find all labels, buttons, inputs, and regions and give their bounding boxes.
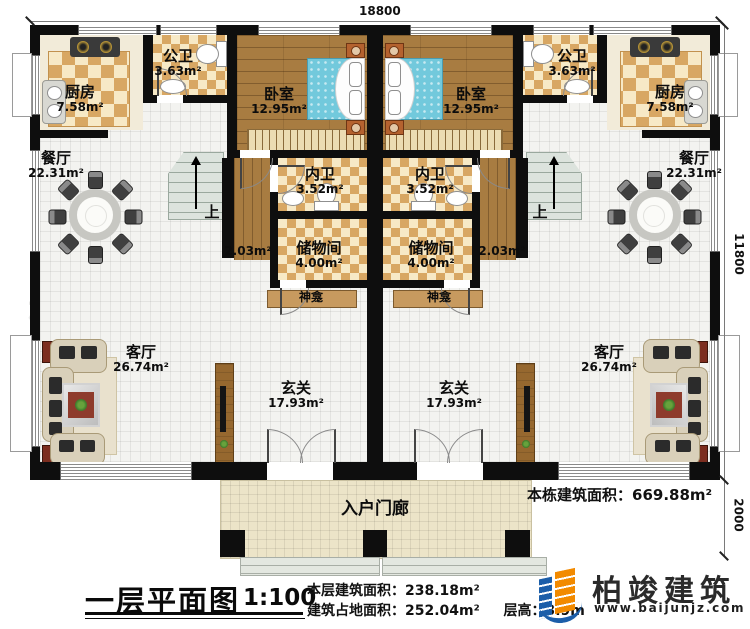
window-sill: [10, 335, 32, 452]
sheet-scale: 1:100: [243, 585, 316, 611]
room-label-innerbath-left: 内卫3.52m²: [296, 166, 343, 196]
sofa-icon: [50, 433, 105, 465]
wall: [227, 35, 237, 158]
porch-column: [505, 530, 530, 557]
logo-url: www.baijunjz.com: [594, 601, 745, 615]
window: [160, 25, 217, 35]
entry-door-opening: [417, 462, 483, 480]
porch-column: [363, 530, 387, 557]
wall: [513, 35, 523, 158]
room-label-dining-right: 餐厅22.31m²: [666, 150, 722, 180]
door-opening: [280, 280, 306, 288]
window: [60, 462, 192, 480]
title-underline: [85, 618, 305, 619]
room-label-foyer-left: 玄关17.93m²: [268, 380, 324, 410]
window: [558, 462, 690, 480]
coffee-table-icon: [62, 383, 100, 427]
room-label-bath-left: 公卫3.63m²: [154, 48, 201, 78]
dim-width: 18800: [355, 4, 405, 18]
pillow-icon: [349, 62, 362, 87]
chair-icon: [647, 246, 662, 264]
shrine-label-right: 神龛: [427, 291, 451, 304]
pillow-icon: [388, 62, 401, 87]
room-label-foyer-right: 玄关17.93m²: [426, 380, 482, 410]
door-opening: [270, 165, 278, 192]
wall: [222, 158, 234, 258]
nightstand-icon: [385, 43, 404, 58]
stove-icon: [630, 37, 680, 57]
room-label-living-right: 客厅26.74m²: [581, 344, 637, 374]
window-sill: [12, 53, 32, 117]
room-label-bath-right: 公卫3.63m²: [548, 48, 595, 78]
logo-icon: [538, 566, 586, 622]
dimension-line-top: [30, 21, 720, 22]
room-label-bedroom-right: 卧室12.95m²: [443, 86, 499, 116]
window-sill: [718, 53, 738, 117]
wall: [516, 158, 528, 258]
nightstand-icon: [385, 120, 404, 135]
window: [410, 25, 492, 35]
door-opening: [444, 280, 470, 288]
nightstand-icon: [346, 120, 365, 135]
coffee-table-icon: [650, 383, 688, 427]
porch-label: 入户门廊: [341, 500, 409, 519]
stove-icon: [70, 37, 120, 57]
chair-icon: [88, 171, 103, 189]
tv-cabinet: [215, 363, 234, 467]
room-label-dining-left: 餐厅22.31m²: [28, 150, 84, 180]
floor-area-line: 本层建筑面积：238.18m²: [307, 580, 480, 600]
door-opening: [157, 95, 183, 103]
wall: [642, 130, 710, 138]
door-opening: [567, 95, 593, 103]
door-opening: [480, 150, 510, 158]
dining-table-icon: [69, 189, 121, 241]
wall: [383, 211, 472, 219]
total-area-note: 本栋建筑面积：669.88m²: [527, 484, 712, 505]
wall: [597, 35, 607, 103]
door-opening: [240, 150, 270, 158]
stairs-up-right: 上: [532, 204, 547, 221]
pillow-icon: [388, 90, 401, 115]
pillow-icon: [349, 90, 362, 115]
window: [78, 25, 157, 35]
porch-steps: [382, 557, 547, 576]
room-label-kitchen-left: 厨房7.58m²: [56, 84, 103, 114]
window: [533, 25, 590, 35]
nightstand-icon: [346, 43, 365, 58]
room-label-living-left: 客厅26.74m²: [113, 344, 169, 374]
dim-height-upper: 11800: [732, 229, 746, 279]
wall: [278, 211, 367, 219]
tv-icon: [524, 386, 530, 432]
room-label-innerbath-right: 内卫3.52m²: [406, 166, 453, 196]
chair-icon: [684, 210, 702, 225]
room-label-kitchen-right: 厨房7.58m²: [646, 84, 693, 114]
sofa-icon: [645, 433, 700, 465]
floor-plan-sheet: 柏竣建筑www.baijunjz.com 柏竣建筑www.baijunjz.co…: [0, 0, 750, 629]
passage-area-left: 2.03m²: [224, 245, 271, 258]
toilet-tank-icon: [411, 201, 436, 211]
shrine-label-left: 神龛: [299, 291, 323, 304]
tv-cabinet: [516, 363, 535, 467]
chair-icon: [49, 210, 67, 225]
chair-icon: [647, 171, 662, 189]
dimension-line-right: [724, 25, 725, 557]
porch-column: [220, 530, 245, 557]
window-sill: [718, 335, 740, 452]
entry-door-opening: [267, 462, 333, 480]
wall: [40, 130, 108, 138]
tv-icon: [220, 386, 226, 432]
chair-icon: [608, 210, 626, 225]
stairs-up-left: 上: [204, 204, 219, 221]
chair-icon: [88, 246, 103, 264]
room-label-storage-left: 储物间4.00m²: [295, 240, 342, 270]
dining-table-icon: [629, 189, 681, 241]
room-label-storage-right: 储物间4.00m²: [407, 240, 454, 270]
room-label-bedroom-left: 卧室12.95m²: [251, 86, 307, 116]
chair-icon: [125, 210, 143, 225]
wall: [143, 35, 153, 103]
dim-height-lower: 2000: [732, 494, 746, 535]
title-underline: [85, 612, 303, 615]
window: [593, 25, 672, 35]
toilet-tank-icon: [314, 201, 339, 211]
passage-area-right: 2.03m²: [478, 245, 525, 258]
window: [258, 25, 340, 35]
porch-steps: [240, 557, 380, 576]
party-wall: [367, 25, 383, 480]
